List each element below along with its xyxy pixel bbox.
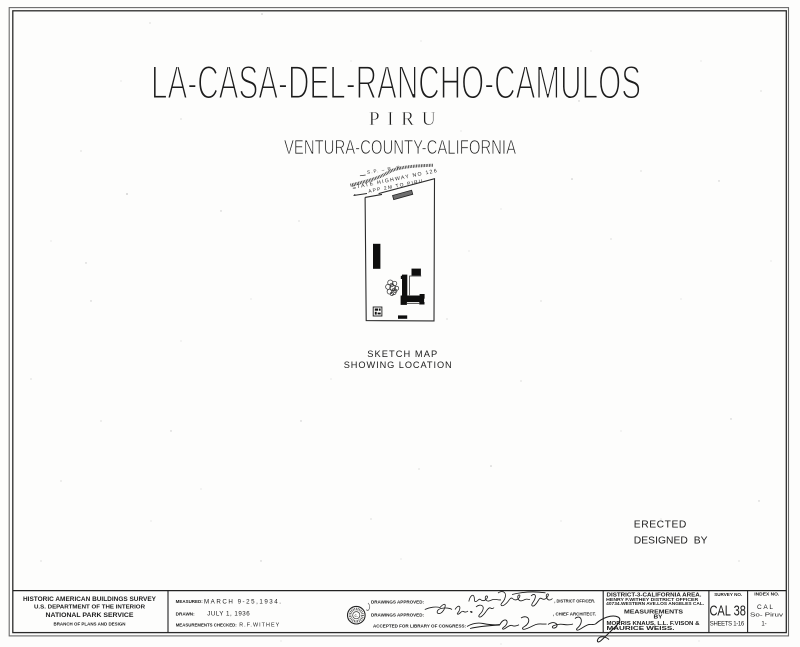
svg-text:INDEX NO.: INDEX NO.	[754, 592, 779, 597]
svg-text:MAURICE WEISS.: MAURICE WEISS.	[607, 626, 676, 632]
svg-text:SHOWING LOCATION: SHOWING LOCATION	[344, 360, 452, 370]
svg-text:NATIONAL PARK SERVICE: NATIONAL PARK SERVICE	[46, 612, 135, 619]
svg-text:1-: 1-	[761, 622, 766, 628]
svg-text:MEASUREMENTS CHECKED:: MEASUREMENTS CHECKED:	[176, 623, 238, 628]
svg-text:ACCEPTED FOR LIBRARY OF CONGRE: ACCEPTED FOR LIBRARY OF CONGRESS:	[373, 624, 467, 629]
svg-text:BY: BY	[654, 615, 664, 621]
svg-text:So- Piruv: So- Piruv	[750, 613, 783, 619]
svg-text:CAL 38: CAL 38	[709, 604, 746, 620]
svg-text:MARCH 9-25,1934.: MARCH 9-25,1934.	[204, 599, 281, 606]
svg-text:JULY 1, 1936: JULY 1, 1936	[207, 611, 250, 618]
svg-text:, DISTRICT OFFICER.: , DISTRICT OFFICER.	[554, 599, 595, 604]
svg-text:DESIGNED BY: DESIGNED BY	[634, 536, 708, 547]
svg-text:VENTURA-COUNTY-CALIFORNIA: VENTURA-COUNTY-CALIFORNIA	[284, 137, 516, 159]
svg-text:DRAWN:: DRAWN:	[176, 611, 196, 616]
svg-text:R.F.WITHEY: R.F.WITHEY	[239, 622, 279, 628]
svg-text:PIRU: PIRU	[369, 109, 443, 130]
svg-text:SURVEY NO.: SURVEY NO.	[714, 592, 742, 597]
svg-text:ERECTED: ERECTED	[634, 520, 687, 531]
svg-text:SKETCH MAP: SKETCH MAP	[367, 349, 437, 359]
svg-text:c.: c.	[355, 613, 359, 618]
svg-text:MEASURED:: MEASURED:	[176, 599, 204, 604]
svg-text:BRANCH OF PLANS AND DESIGN: BRANCH OF PLANS AND DESIGN	[54, 621, 126, 626]
svg-text:DRAWINGS APPROVED:: DRAWINGS APPROVED:	[371, 599, 425, 604]
svg-text:, CHIEF ARCHITECT.: , CHIEF ARCHITECT.	[553, 612, 596, 617]
svg-text:LA-CASA-DEL-RANCHO-CAMULOS: LA-CASA-DEL-RANCHO-CAMULOS	[151, 56, 641, 109]
svg-text:SHEETS 1-16: SHEETS 1-16	[710, 622, 745, 628]
svg-text:DRAWINGS APPROVED:: DRAWINGS APPROVED:	[371, 612, 425, 617]
svg-text:CAL: CAL	[757, 604, 773, 611]
svg-text:40734.WESTERN AVE.LOS ANGELES: 40734.WESTERN AVE.LOS ANGELES CAL.	[606, 601, 704, 606]
svg-text:U.S. DEPARTMENT OF THE INTERIO: U.S. DEPARTMENT OF THE INTERIOR	[34, 605, 146, 611]
svg-text:HISTORIC AMERICAN BUILDINGS SU: HISTORIC AMERICAN BUILDINGS SURVEY	[23, 596, 156, 603]
